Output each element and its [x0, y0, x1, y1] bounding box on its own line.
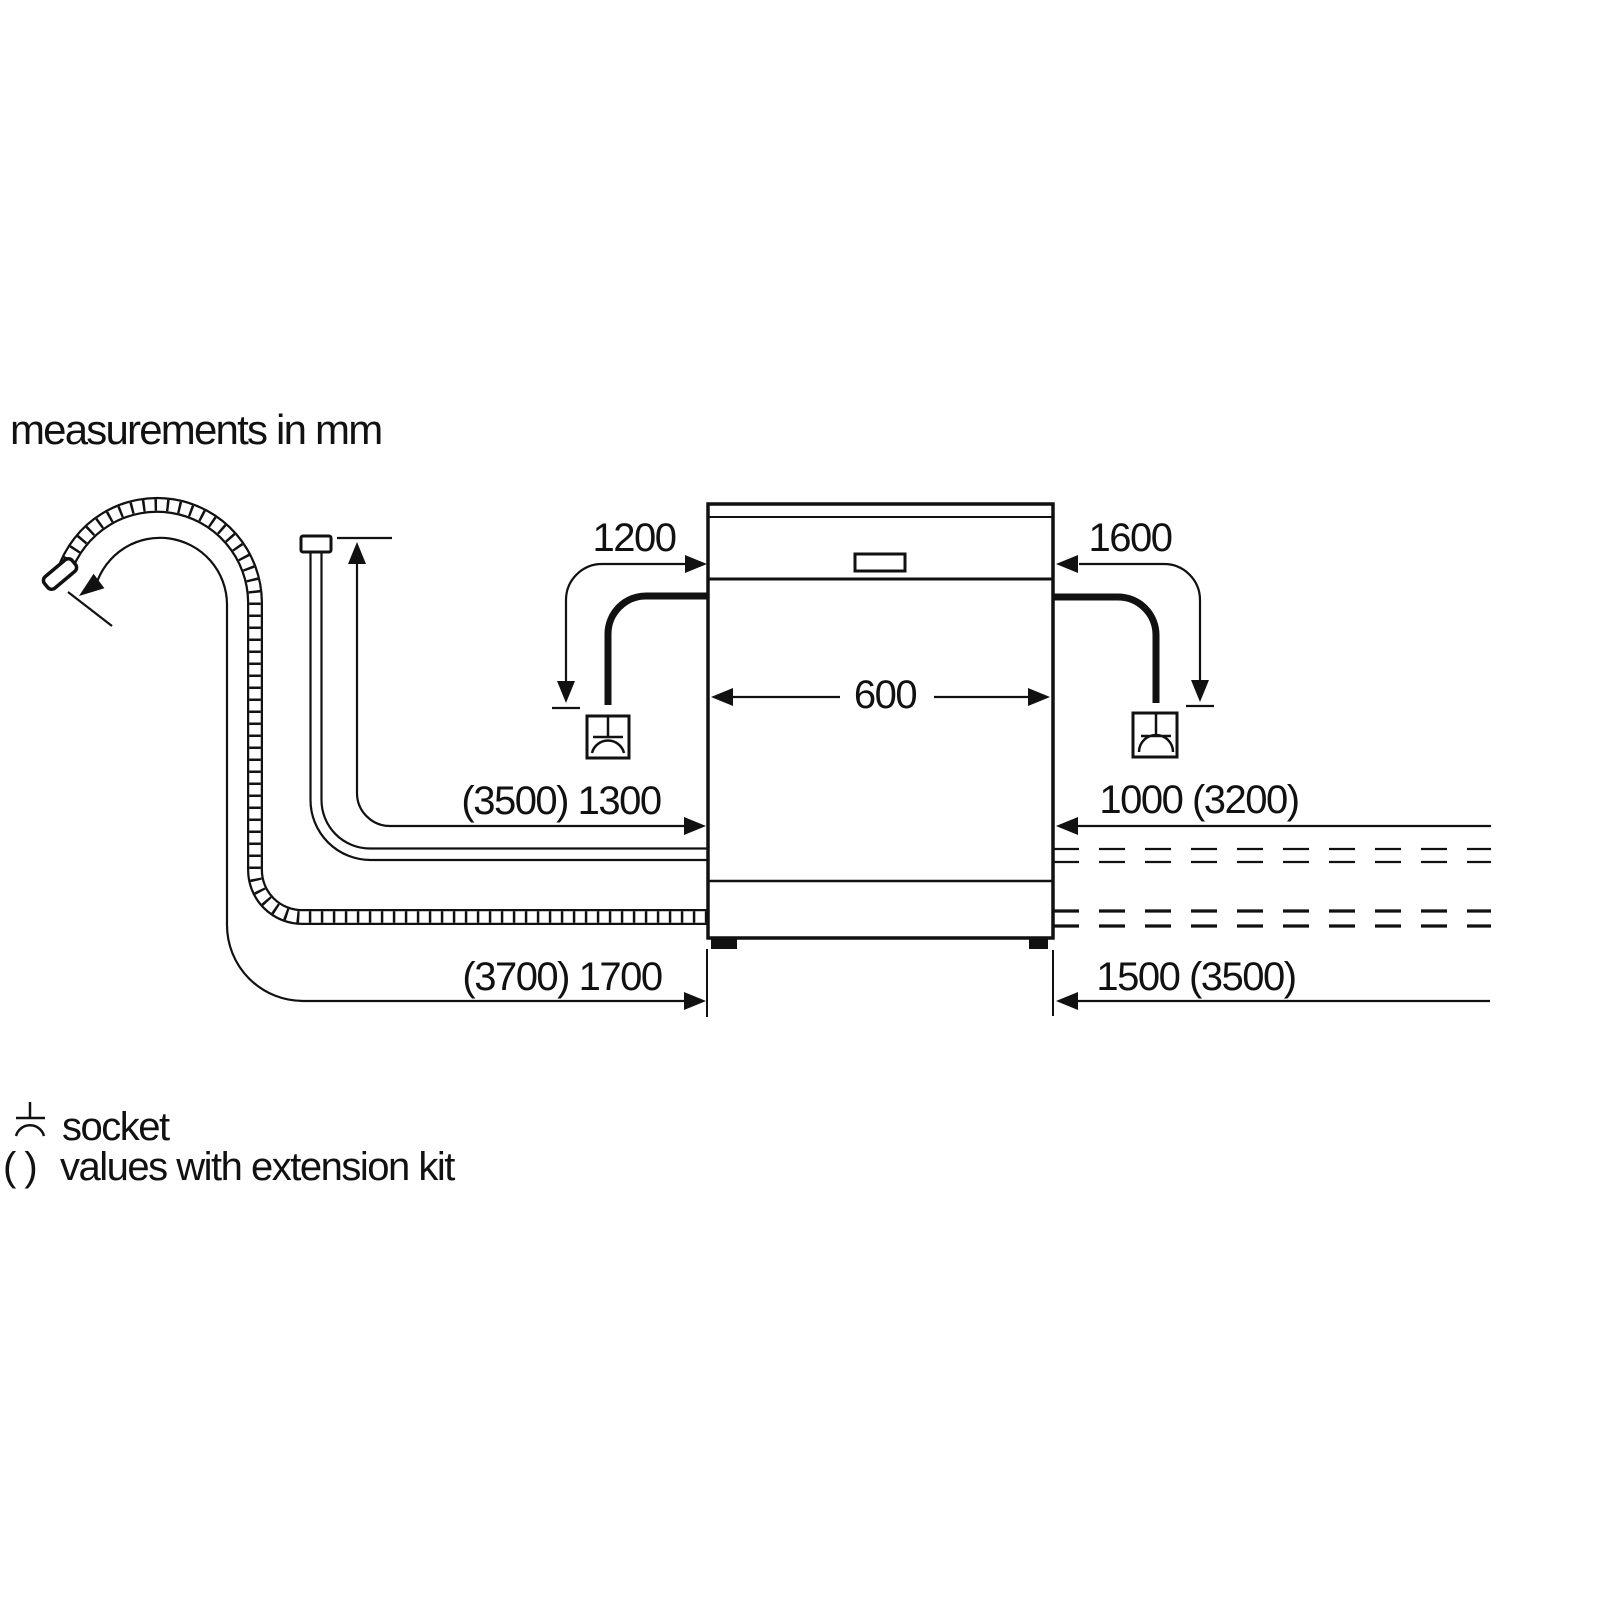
legend-extension-label: values with extension kit: [60, 1145, 455, 1189]
arrow-right-icon: [684, 817, 706, 835]
supply-dimension-right: 1000 (3200): [1056, 778, 1491, 835]
arrow-right-icon: [685, 555, 707, 573]
drain-dimension-right: 1500 (3500): [1056, 955, 1490, 1010]
drain-hose: [41, 505, 708, 917]
supply-dimension-left: (3500) 1300: [337, 538, 706, 835]
legend-parentheses-symbol: ( ): [3, 1145, 36, 1189]
dishwasher-front-view: [708, 504, 1053, 949]
socket-right: [1133, 713, 1177, 757]
power-cord-right: [1053, 597, 1156, 703]
socket-icon: [16, 1102, 45, 1136]
width-label: 600: [854, 673, 916, 717]
arrow-down-icon: [1191, 680, 1209, 702]
foot-right: [1029, 938, 1048, 949]
installation-diagram: measurements in mm 600 12: [0, 0, 1600, 1600]
legend: socket ( ) values with extension kit: [3, 1102, 455, 1189]
arrow-left-icon: [1056, 992, 1078, 1010]
door-handle: [855, 554, 905, 571]
installation-diagram-page: measurements in mm 600 12: [0, 0, 1600, 1600]
arrow-diagonal-icon: [79, 574, 104, 596]
drain-dimension-left: (3700) 1700: [68, 538, 706, 1010]
cord-dim-curve-right: [1079, 564, 1200, 683]
diagram-title: measurements in mm: [10, 406, 381, 453]
arrow-down-icon: [557, 681, 575, 703]
power-cord-left: [608, 596, 708, 705]
drain-hose-core: [64, 505, 708, 917]
arrow-left-icon: [1056, 555, 1078, 573]
legend-socket-label: socket: [62, 1105, 170, 1149]
drain-hose-outline: [64, 505, 708, 917]
cord-length-label-right: 1600: [1089, 516, 1172, 560]
drain-dim-path: [96, 538, 688, 1001]
foot-left: [711, 938, 737, 949]
cord-dimension-left: 1200: [552, 516, 707, 708]
supply-hose-label-right: 1000 (3200): [1099, 778, 1298, 822]
supply-hose-tap-connector: [301, 536, 331, 552]
arrow-right-icon: [684, 992, 706, 1010]
drain-hose-label-right: 1500 (3500): [1096, 955, 1295, 999]
dashed-hoses-right: [1053, 849, 1491, 926]
supply-hose-label-left: (3500) 1300: [461, 779, 660, 823]
cord-dim-curve-left: [566, 564, 687, 684]
cord-dimension-right: 1600: [1056, 516, 1214, 706]
datum-tick: [68, 592, 112, 626]
socket-left: [587, 716, 629, 758]
cord-length-label-left: 1200: [593, 516, 676, 560]
arrow-left-icon: [1056, 817, 1078, 835]
drain-hose-ribs: [64, 505, 708, 917]
drain-hose-label-left: (3700) 1700: [462, 955, 661, 999]
